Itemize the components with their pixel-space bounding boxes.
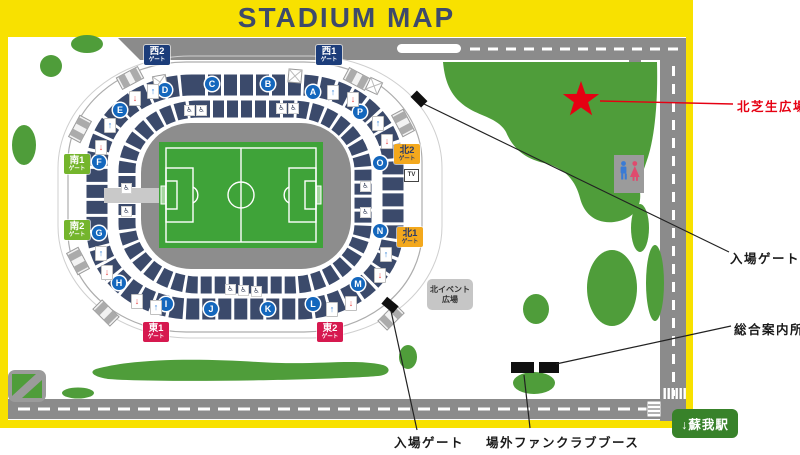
wheelchair-icon: ♿ <box>196 105 207 116</box>
entry-arrow-up-icon: ↑ <box>150 300 162 315</box>
label-entrance-gate-se: 入場ゲート <box>394 432 464 451</box>
entry-arrow-up-icon: ↑ <box>147 84 159 99</box>
gate-north2-suffix: ゲート <box>399 157 416 163</box>
gate-west1: 西1ゲート <box>316 45 342 65</box>
gate-east1-label: 東1 <box>149 324 164 334</box>
north-event-plaza-line1: 北イベント <box>430 285 470 294</box>
section-e-badge: E <box>113 103 127 117</box>
wheelchair-icon: ♿ <box>184 105 195 116</box>
section-l-badge: L <box>306 297 320 311</box>
entry-arrow-down-icon: ↓ <box>131 294 143 309</box>
section-k-badge: K <box>261 302 275 316</box>
entry-arrow-down-icon: ↓ <box>347 92 359 107</box>
label-info-center: 総合案内所 <box>734 319 800 338</box>
section-h-badge: H <box>112 276 126 290</box>
gate-north2-label: 北2 <box>400 146 415 156</box>
page-title: STADIUM MAP <box>0 2 693 34</box>
north-event-plaza-line2: 広場 <box>442 295 458 304</box>
section-j-badge: J <box>204 302 218 316</box>
gate-north2: 北2ゲート <box>394 144 420 164</box>
label-entrance-gate-ne: 入場ゲート <box>730 248 800 267</box>
stadium-map-page: STADIUM MAP 西2ゲート西1ゲート南1ゲート南2ゲート東1ゲート東2ゲ… <box>0 0 800 455</box>
gate-east1-suffix: ゲート <box>148 335 165 341</box>
section-n-badge: N <box>373 224 387 238</box>
soga-station-sign: ↓蘇我駅 <box>672 409 738 438</box>
section-f-badge: F <box>92 155 106 169</box>
gate-south1-label: 南1 <box>70 156 85 166</box>
tv-screen-icon: TV <box>404 169 419 182</box>
gate-east2: 東2ゲート <box>317 322 343 342</box>
gate-north1-suffix: ゲート <box>402 240 419 246</box>
entry-arrow-up-icon: ↑ <box>104 118 116 133</box>
wheelchair-icon: ♿ <box>360 207 371 218</box>
wheelchair-icon: ♿ <box>251 286 262 297</box>
entry-arrow-up-icon: ↑ <box>95 246 107 261</box>
gate-west2: 西2ゲート <box>144 45 170 65</box>
gate-south2-label: 南2 <box>70 222 85 232</box>
gate-west2-suffix: ゲート <box>149 58 166 64</box>
text-overlay: STADIUM MAP 西2ゲート西1ゲート南1ゲート南2ゲート東1ゲート東2ゲ… <box>0 0 800 455</box>
wheelchair-icon: ♿ <box>225 284 236 295</box>
gate-east1: 東1ゲート <box>143 322 169 342</box>
gate-west1-suffix: ゲート <box>321 58 338 64</box>
wheelchair-icon: ♿ <box>288 103 299 114</box>
section-b-badge: B <box>261 77 275 91</box>
gate-east2-suffix: ゲート <box>322 335 339 341</box>
entry-arrow-up-icon: ↑ <box>326 302 338 317</box>
wheelchair-icon: ♿ <box>360 181 371 192</box>
entry-arrow-up-icon: ↑ <box>372 116 384 131</box>
north-event-plaza-box: 北イベント 広場 <box>427 279 473 310</box>
entry-arrow-down-icon: ↓ <box>345 296 357 311</box>
section-a-badge: A <box>306 85 320 99</box>
gate-south2: 南2ゲート <box>64 220 90 240</box>
section-d-badge: D <box>158 83 172 97</box>
section-o-badge: O <box>373 156 387 170</box>
gate-north1: 北1ゲート <box>397 227 423 247</box>
entry-arrow-down-icon: ↓ <box>95 140 107 155</box>
label-north-lawn-plaza: 北芝生広場 <box>737 96 800 115</box>
wheelchair-icon: ♿ <box>121 183 132 194</box>
section-m-badge: M <box>351 277 365 291</box>
section-g-badge: G <box>92 226 106 240</box>
entry-arrow-down-icon: ↓ <box>381 134 393 149</box>
gate-west2-label: 西2 <box>150 47 165 57</box>
wheelchair-icon: ♿ <box>238 285 249 296</box>
gate-north1-label: 北1 <box>403 229 418 239</box>
section-c-badge: C <box>205 77 219 91</box>
gate-south2-suffix: ゲート <box>69 233 86 239</box>
entry-arrow-down-icon: ↓ <box>101 265 113 280</box>
gate-south1-suffix: ゲート <box>69 167 86 173</box>
wheelchair-icon: ♿ <box>121 206 132 217</box>
wheelchair-icon: ♿ <box>276 103 287 114</box>
section-p-badge: P <box>353 105 367 119</box>
label-fanclub-booth: 場外ファンクラブブース <box>486 432 639 451</box>
entry-arrow-up-icon: ↑ <box>380 247 392 262</box>
gate-east2-label: 東2 <box>323 324 338 334</box>
gate-south1: 南1ゲート <box>64 154 90 174</box>
gate-west1-label: 西1 <box>322 47 337 57</box>
entry-arrow-down-icon: ↓ <box>129 91 141 106</box>
entry-arrow-up-icon: ↑ <box>327 85 339 100</box>
entry-arrow-down-icon: ↓ <box>374 268 386 283</box>
